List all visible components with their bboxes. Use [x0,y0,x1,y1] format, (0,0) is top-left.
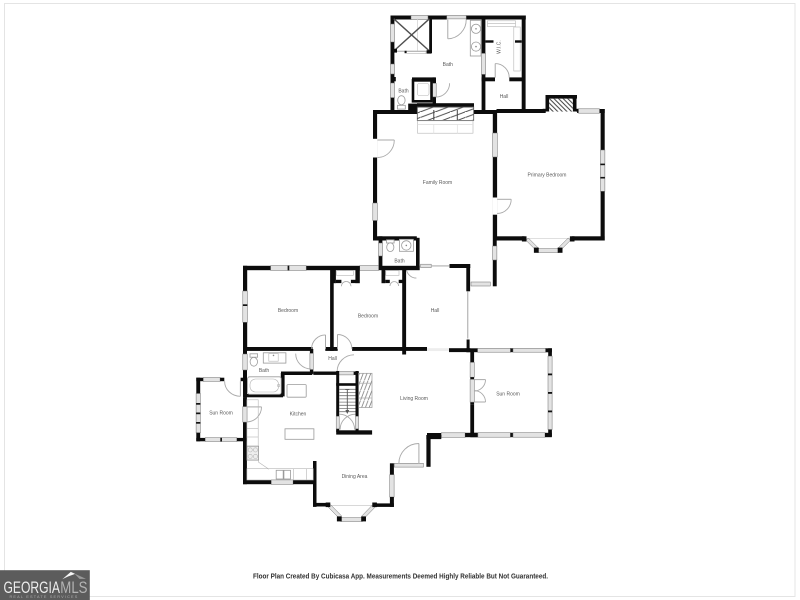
svg-text:Dining Area: Dining Area [342,474,368,480]
svg-text:Floor Plan Created By Cubicasa: Floor Plan Created By Cubicasa App. Meas… [253,572,548,581]
svg-text:Hall: Hall [328,356,337,362]
svg-text:Family Room: Family Room [423,180,452,186]
svg-text:W.I.C.: W.I.C. [497,40,503,54]
svg-text:Living Room: Living Room [400,396,428,402]
svg-text:REAL ESTATE SERVICES: REAL ESTATE SERVICES [10,595,79,599]
svg-text:Bath: Bath [398,89,409,95]
svg-text:Bedroom: Bedroom [358,314,378,320]
svg-text:Hall: Hall [500,94,509,100]
svg-text:Bath: Bath [394,258,405,264]
svg-text:Bedroom: Bedroom [278,308,298,314]
svg-text:Bath: Bath [259,368,270,374]
svg-text:Bath: Bath [443,62,454,68]
svg-text:Primary Bedroom: Primary Bedroom [528,173,567,179]
svg-text:Hall: Hall [431,308,440,314]
svg-text:Kitchen: Kitchen [290,412,307,418]
svg-text:Sun Room: Sun Room [496,392,520,398]
svg-text:Sun Room: Sun Room [209,411,233,417]
